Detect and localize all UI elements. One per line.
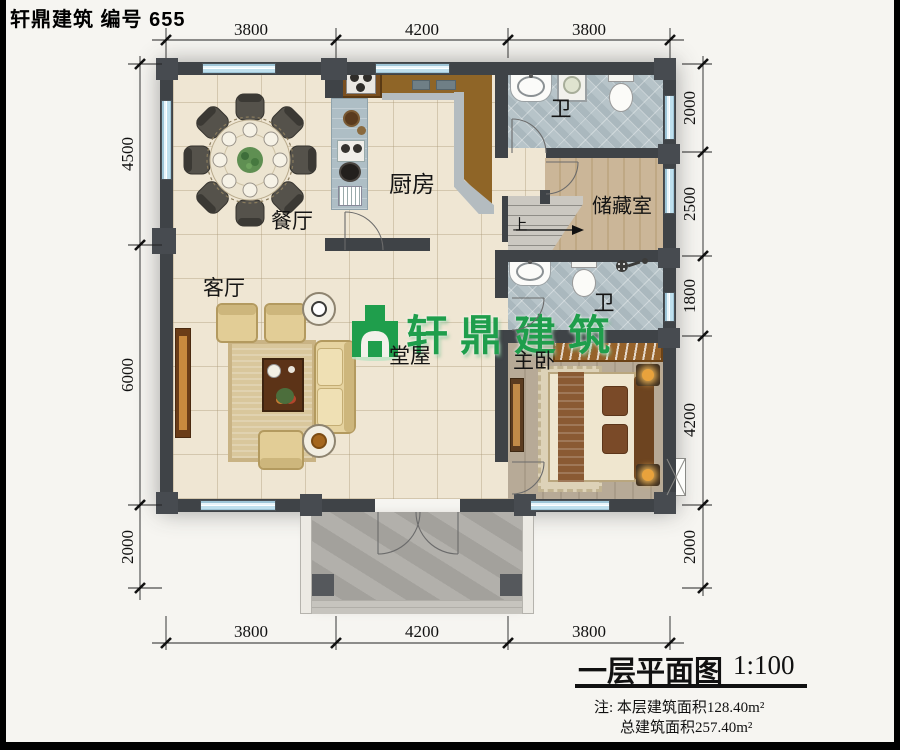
area-note-line1: 注: 本层建筑面积128.40m² bbox=[594, 696, 764, 717]
room-label-bath-top: 卫 bbox=[551, 93, 572, 123]
room-label-hall: 堂屋 bbox=[389, 340, 431, 370]
dim-bottom-3: 3800 bbox=[572, 622, 606, 641]
plan-linework: 3800 4200 3800 3800 4200 3800 4500 6000 … bbox=[0, 0, 900, 750]
page-title: 轩鼎建筑 编号 655 bbox=[10, 3, 185, 32]
dim-left-1: 4500 bbox=[118, 137, 137, 171]
dim-bottom-1: 3800 bbox=[234, 622, 268, 641]
area-note-line2: 总建筑面积257.40m² bbox=[620, 716, 752, 737]
dim-right-4: 4200 bbox=[680, 403, 699, 437]
room-label-kitchen: 厨房 bbox=[389, 165, 435, 199]
dim-bottom-2: 4200 bbox=[405, 622, 439, 641]
shower-head-icon bbox=[616, 258, 648, 272]
dim-left-3: 2000 bbox=[118, 530, 137, 564]
dim-right-1: 2000 bbox=[680, 91, 699, 125]
dim-right-5: 2000 bbox=[680, 530, 699, 564]
dim-top-3: 3800 bbox=[572, 20, 606, 39]
room-label-living: 客厅 bbox=[203, 272, 245, 302]
dim-left-2: 6000 bbox=[118, 358, 137, 392]
dining-centerpiece-plant bbox=[237, 147, 263, 173]
page-border-bottom bbox=[0, 742, 900, 750]
room-label-bath-mid: 卫 bbox=[594, 287, 615, 317]
dim-top-1: 3800 bbox=[234, 20, 268, 39]
drawing-scale: 1:100 bbox=[733, 650, 795, 681]
page-border-right bbox=[894, 0, 900, 750]
door-swings bbox=[345, 119, 578, 554]
dim-top-2: 4200 bbox=[405, 20, 439, 39]
ac-unit-cross bbox=[667, 459, 685, 495]
room-label-dining: 餐厅 bbox=[271, 205, 313, 235]
dim-right-3: 1800 bbox=[680, 279, 699, 313]
room-label-storage: 储藏室 bbox=[592, 190, 652, 219]
title-underline bbox=[575, 684, 807, 688]
page-border-left bbox=[0, 0, 6, 750]
stairs-up-label: 上 bbox=[512, 214, 527, 235]
faucet-dots bbox=[528, 74, 533, 264]
dim-right-2: 2500 bbox=[680, 187, 699, 221]
room-label-master-bedroom: 主卧 bbox=[513, 345, 555, 375]
